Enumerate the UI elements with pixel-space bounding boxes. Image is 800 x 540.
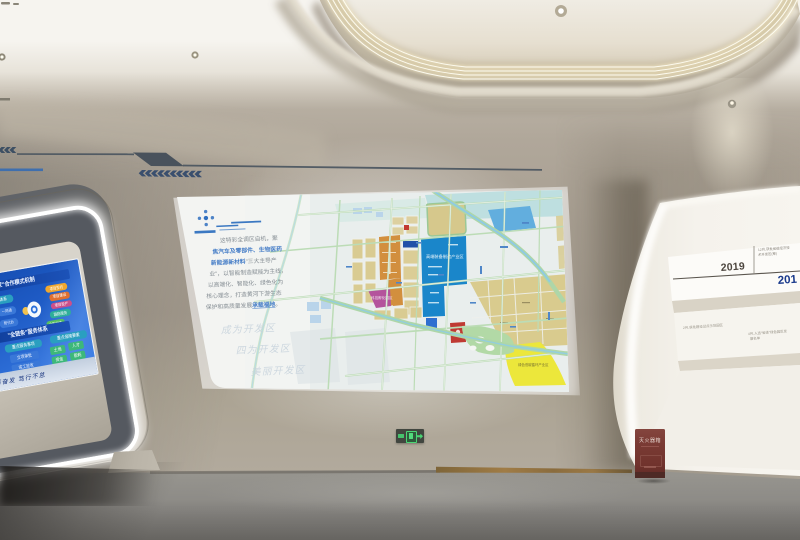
svg-text:四为开发区: 四为开发区	[235, 342, 291, 356]
svg-text:成为开发区: 成为开发区	[221, 322, 277, 336]
svg-text:2019: 2019	[720, 260, 745, 274]
svg-text:绿色低碳循环产业区: 绿色低碳循环产业区	[518, 362, 549, 367]
svg-text:科技孵化园区: 科技孵化园区	[371, 295, 393, 300]
svg-text:高端装备制造产业区: 高端装备制造产业区	[426, 253, 464, 260]
svg-text:201: 201	[777, 274, 798, 287]
svg-text:美丽开发区: 美丽开发区	[250, 364, 306, 378]
svg-text:展名单: 展名单	[750, 335, 761, 341]
